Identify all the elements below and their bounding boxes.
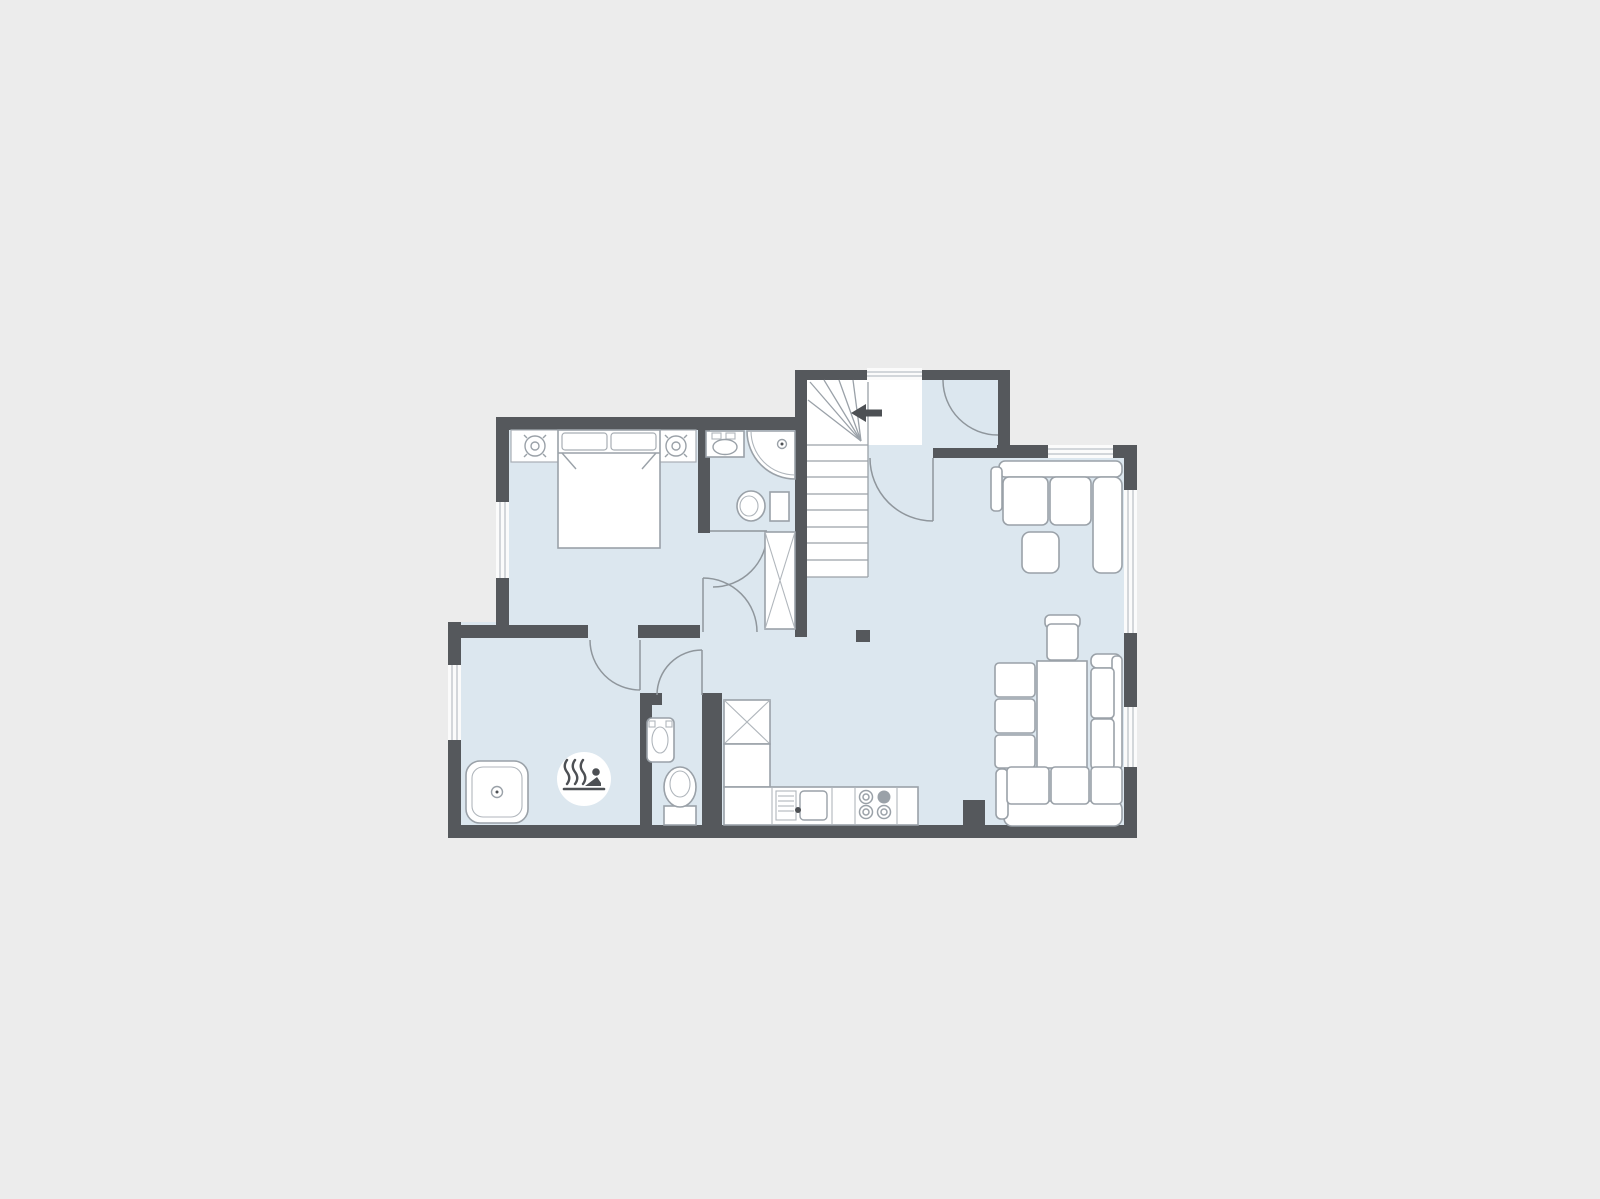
sofa-armrest-left — [991, 467, 1002, 511]
wall-sauna-left-lower — [448, 740, 461, 838]
faucet-icon — [795, 807, 801, 813]
sofa-seat-2 — [1050, 477, 1091, 525]
floor-plan-canvas — [0, 0, 1600, 1199]
window-right-upper — [1124, 490, 1137, 633]
sauna-hot-springs-icon — [557, 752, 611, 806]
wall-vestibule-bottom — [933, 448, 1010, 458]
three-seat-sofa-seat-2 — [1051, 767, 1089, 804]
wall-south-bedroom-a — [448, 625, 588, 638]
wall-vestibule-right — [998, 370, 1010, 448]
window-right-lower — [1124, 707, 1137, 767]
window-living-top — [1048, 445, 1113, 458]
wall-bedroom-left-upper — [496, 417, 509, 502]
wall-wc-kitchen — [702, 693, 722, 825]
sofa-back — [999, 461, 1122, 477]
wardrobe-closet — [765, 532, 795, 629]
table — [1037, 661, 1087, 768]
base-cabinet — [724, 744, 770, 787]
three-seat-sofa-seat-3 — [1091, 767, 1122, 804]
stair-flight — [807, 445, 868, 577]
pillow-left — [562, 433, 607, 450]
ottoman — [1022, 532, 1059, 573]
wall-vestibule-top-a — [795, 370, 867, 380]
sofa-seat-1 — [1003, 477, 1048, 525]
bench-seat-2 — [995, 699, 1035, 733]
wall-pillar-bottom — [963, 800, 985, 825]
wc-toilet — [664, 767, 696, 825]
wall-stair-pillar — [856, 630, 870, 642]
wall-bedroom-top — [496, 417, 807, 430]
two-seat-sofa — [1091, 654, 1122, 769]
two-seat-sofa-seat-2 — [1091, 719, 1114, 769]
wall-right-middle — [1124, 633, 1137, 707]
bathroom-washbasin — [706, 431, 744, 457]
wall-vestibule-top-b — [922, 370, 1010, 380]
wall-south-bedroom-b — [638, 625, 700, 638]
tall-cabinet-x — [724, 700, 770, 744]
window-vestibule-top — [867, 368, 922, 380]
sofa-chaise — [1093, 477, 1122, 573]
wc-washbasin — [647, 718, 674, 762]
wall-stairwell-left — [795, 380, 807, 637]
two-seat-sofa-seat-1 — [1091, 668, 1114, 718]
bench-seat-1 — [995, 663, 1035, 697]
sauna-person-head — [592, 768, 600, 776]
window-sauna-left — [448, 665, 461, 740]
three-seat-sofa-seat-1 — [1007, 767, 1049, 804]
floor-plan-page — [0, 0, 1600, 1199]
double-bed — [558, 430, 660, 548]
burner-solid — [878, 791, 891, 804]
three-seat-sofa — [996, 767, 1122, 826]
pillow-right — [611, 433, 656, 450]
bench-seat-3 — [995, 735, 1035, 768]
wall-living-top-b — [1113, 445, 1137, 458]
armchair-seat — [1047, 624, 1078, 660]
plunge-tub — [466, 761, 528, 823]
wall-right-lower — [1124, 767, 1137, 838]
window-bedroom-left — [496, 502, 509, 578]
wall-bottom — [448, 825, 1137, 838]
